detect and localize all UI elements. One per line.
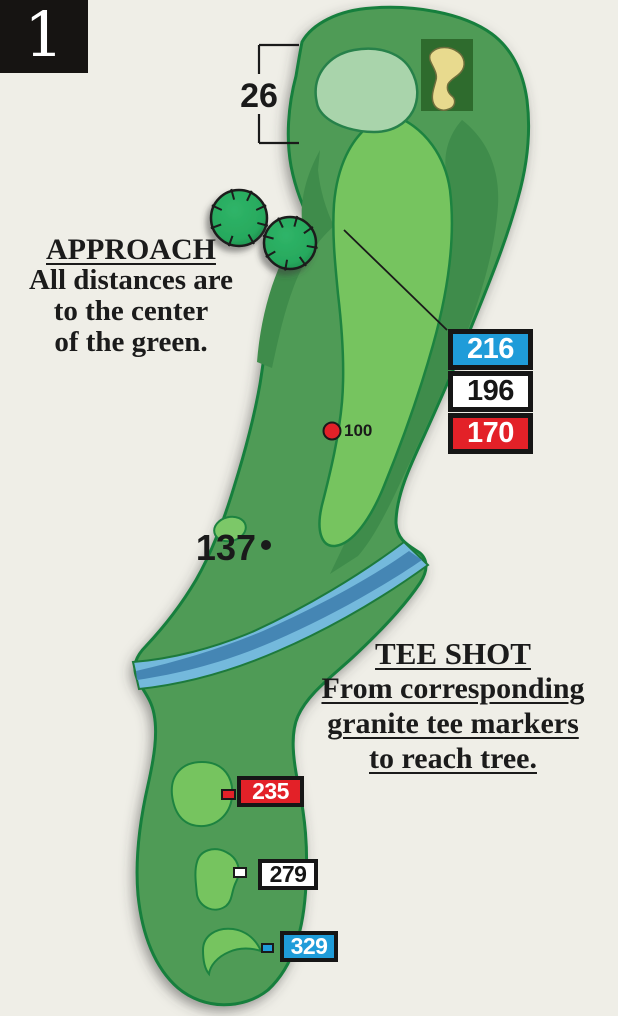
putting-green (316, 49, 418, 132)
tee-square-middle (234, 868, 246, 877)
approach-note-line: to the center (2, 296, 260, 327)
hole-number-badge: 1 (0, 0, 88, 73)
tee-marker-box: 279 (258, 859, 318, 890)
tee-shot-note-line: granite tee markers (288, 706, 618, 741)
tee-marker-box: 235 (237, 776, 304, 807)
approach-marker-stack: 216 196 170 (448, 329, 533, 455)
yardage-dot-100 (324, 423, 341, 440)
tee-square-front (262, 944, 273, 952)
approach-marker-box: 196 (448, 371, 533, 412)
tee-shot-note: TEE SHOT From corresponding granite tee … (288, 636, 618, 776)
yardage-label-100: 100 (344, 421, 372, 441)
tee-shot-note-title: TEE SHOT (288, 636, 618, 671)
approach-marker-box: 170 (448, 413, 533, 454)
approach-note: APPROACH All distances are to the center… (2, 234, 260, 358)
approach-note-title: APPROACH (2, 234, 260, 265)
yardage-dot-137 (261, 540, 271, 550)
tee-shot-note-line: to reach tree. (288, 741, 618, 776)
approach-note-line: All distances are (2, 265, 260, 296)
tee-square-back (222, 790, 235, 799)
approach-note-line: of the green. (2, 327, 260, 358)
yardage-book-page: 1 26 APPROACH All distances are to the c… (0, 0, 618, 1016)
tee-shot-note-line: From corresponding (288, 671, 618, 706)
tee-marker-box: 329 (280, 931, 338, 962)
yardage-label-137: 137 (150, 527, 256, 569)
green-depth-label: 26 (230, 77, 288, 116)
approach-marker-box: 216 (448, 329, 533, 370)
